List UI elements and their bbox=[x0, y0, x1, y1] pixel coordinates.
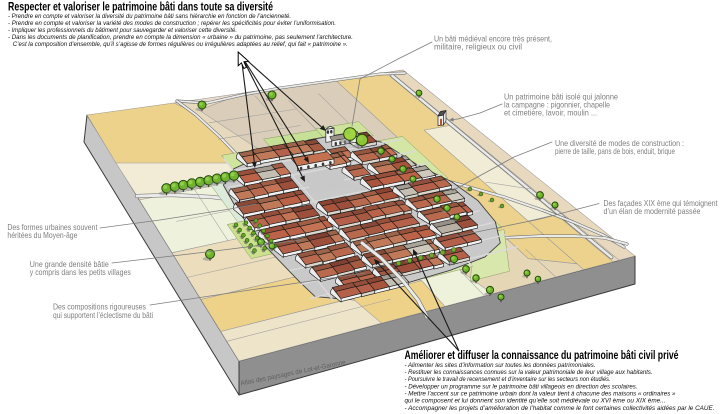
svg-text:Une diversité de modes de cons: Une diversité de modes de construction :… bbox=[555, 139, 684, 156]
svg-text:Des compositions rigoureusesqu: Des compositions rigoureusesqui supporte… bbox=[53, 303, 153, 320]
svg-text:Respecter et valoriser le patr: Respecter et valoriser le patrimoine bât… bbox=[8, 2, 273, 14]
svg-text:Améliorer et diffuser la conna: Améliorer et diffuser la connaissance du… bbox=[405, 350, 679, 362]
